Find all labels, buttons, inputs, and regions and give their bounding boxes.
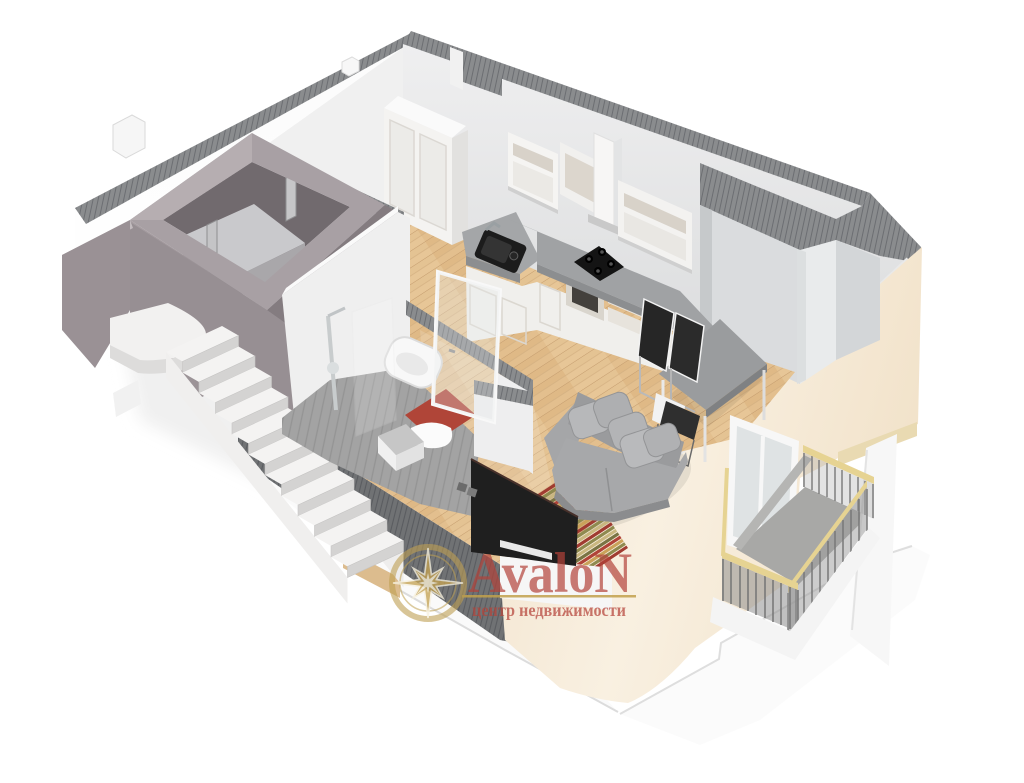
svg-text:центр недвижимости: центр недвижимости <box>472 600 626 620</box>
